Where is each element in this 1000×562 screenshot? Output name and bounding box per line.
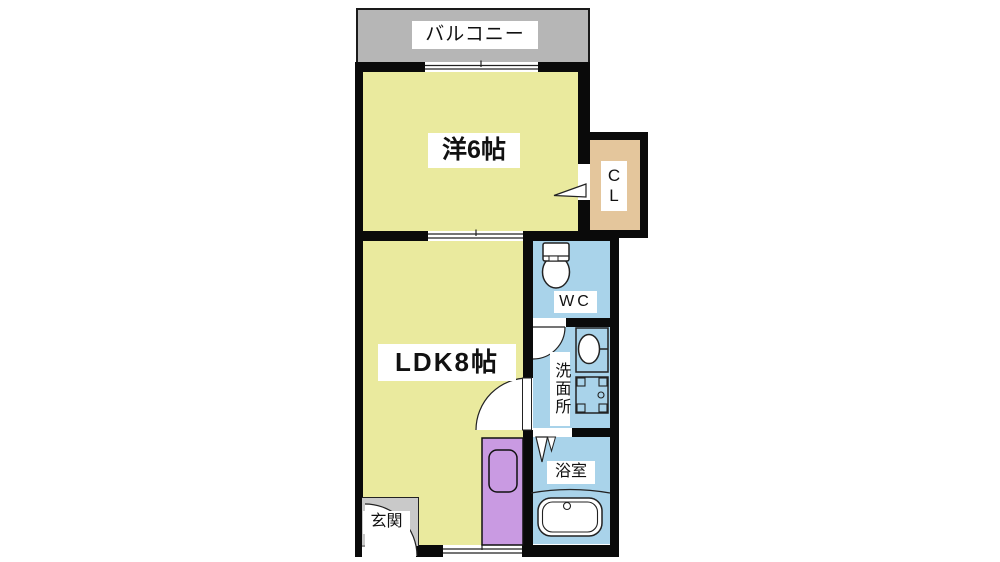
fixtures-layer [0, 0, 1000, 562]
bathtub-icon [531, 490, 610, 537]
floor-plan: バルコニー 洋6帖 C L LDK8帖 WC 洗面所 浴室 玄関 [0, 0, 1000, 562]
kitchen-sink-icon [489, 450, 517, 492]
closet-label-bottom: L [609, 186, 618, 206]
wc-label: WC [554, 291, 597, 313]
entrance-label: 玄関 [363, 511, 410, 534]
sliding-window-icon [425, 61, 538, 73]
sink-icon [576, 328, 608, 372]
sliding-window-icon [443, 544, 522, 557]
balcony-label: バルコニー [412, 21, 538, 49]
folding-door-icon [554, 164, 590, 200]
washing-machine-icon [576, 377, 608, 413]
closet-label: C L [601, 161, 627, 211]
ldk-label: LDK8帖 [378, 344, 516, 381]
bathroom-label: 浴室 [547, 461, 595, 484]
western-room-label: 洋6帖 [428, 133, 520, 168]
kitchen-counter [482, 438, 523, 545]
door-swing-arc [476, 378, 533, 430]
folding-door-icon [533, 428, 572, 462]
washroom-label: 洗面所 [550, 352, 570, 426]
toilet-icon [543, 243, 570, 288]
sliding-door-icon [428, 230, 523, 242]
closet-label-top: C [608, 166, 620, 186]
